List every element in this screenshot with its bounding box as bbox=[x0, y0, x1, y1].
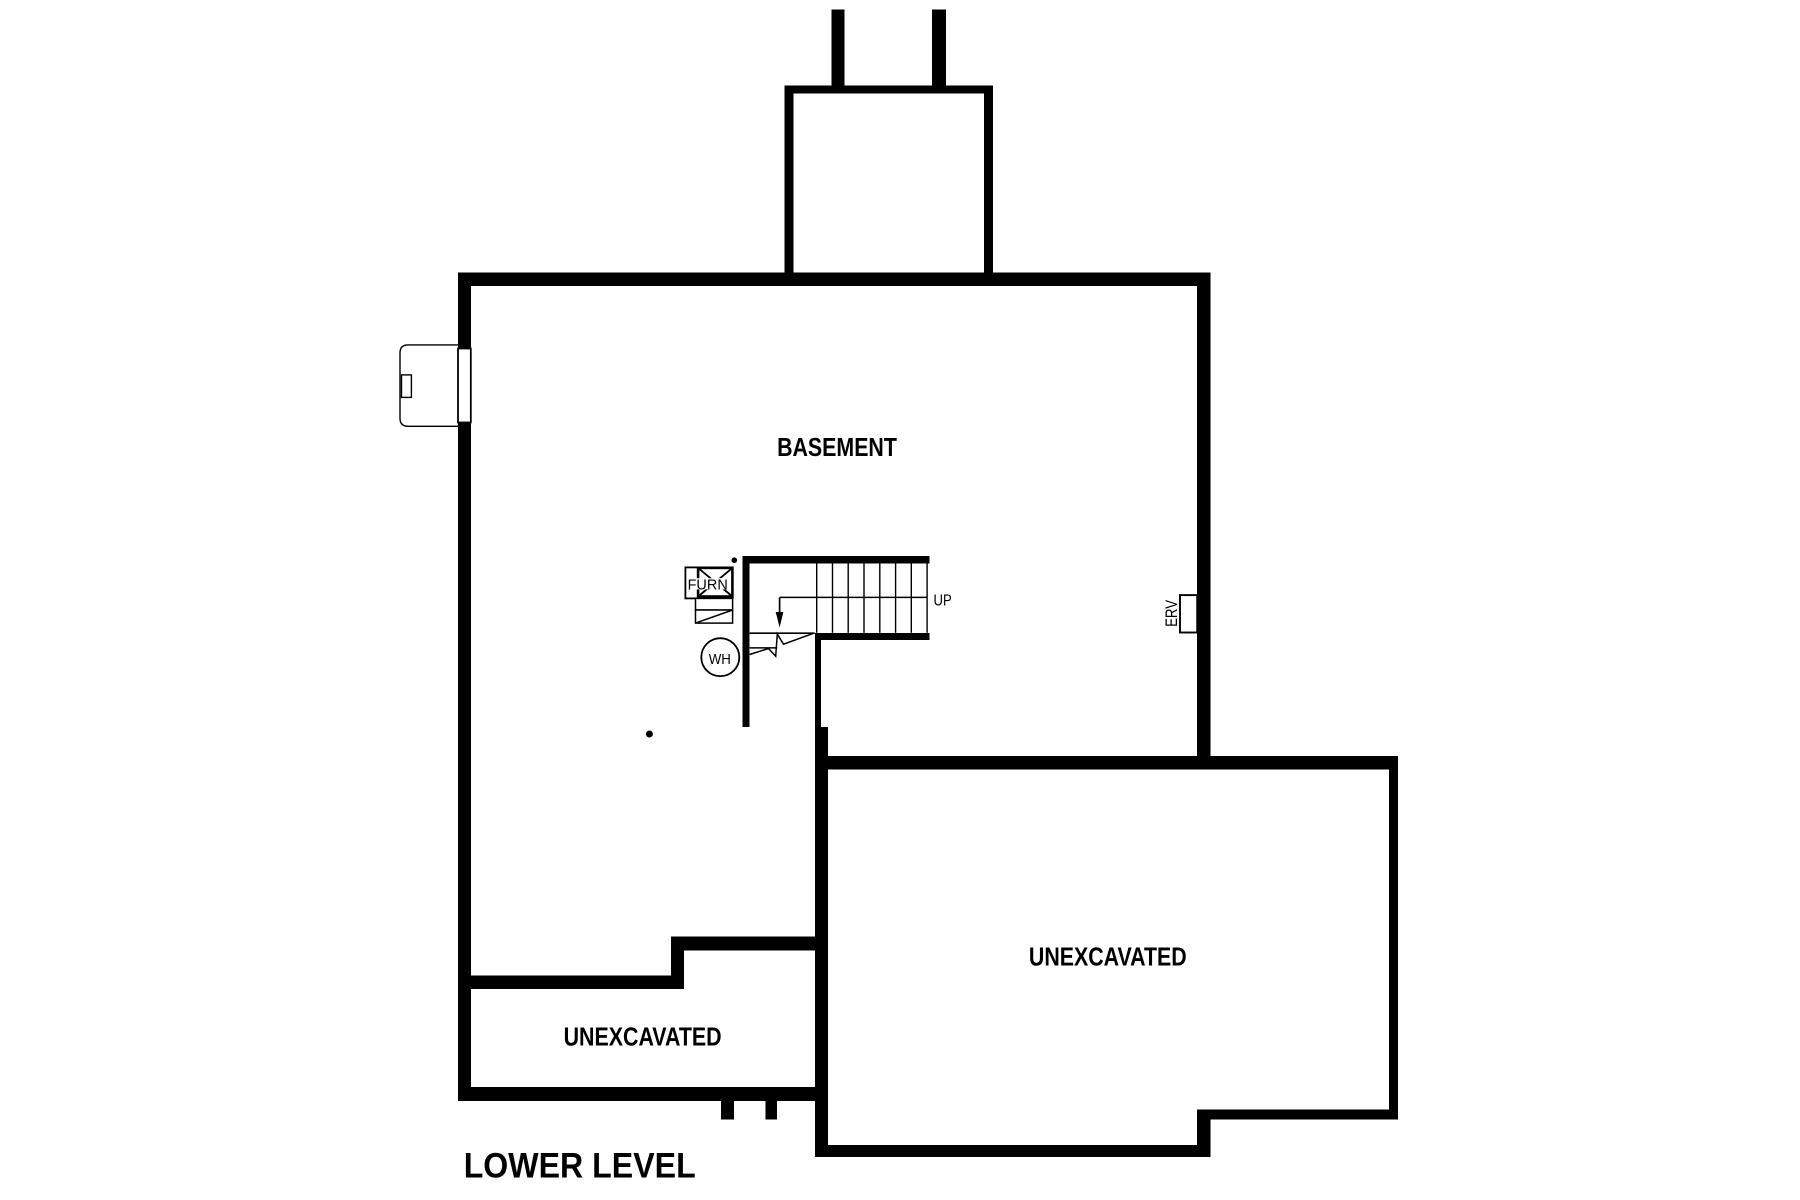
svg-text:UP: UP bbox=[934, 592, 952, 609]
svg-text:ERV: ERV bbox=[1163, 600, 1181, 627]
svg-text:UNEXCAVATED: UNEXCAVATED bbox=[1029, 944, 1187, 972]
svg-text:FURN: FURN bbox=[688, 578, 728, 594]
svg-text:UNEXCAVATED: UNEXCAVATED bbox=[564, 1024, 722, 1052]
svg-text:LOWER LEVEL: LOWER LEVEL bbox=[464, 1147, 696, 1186]
svg-text:WH: WH bbox=[709, 651, 731, 668]
svg-text:BASEMENT: BASEMENT bbox=[777, 434, 897, 462]
